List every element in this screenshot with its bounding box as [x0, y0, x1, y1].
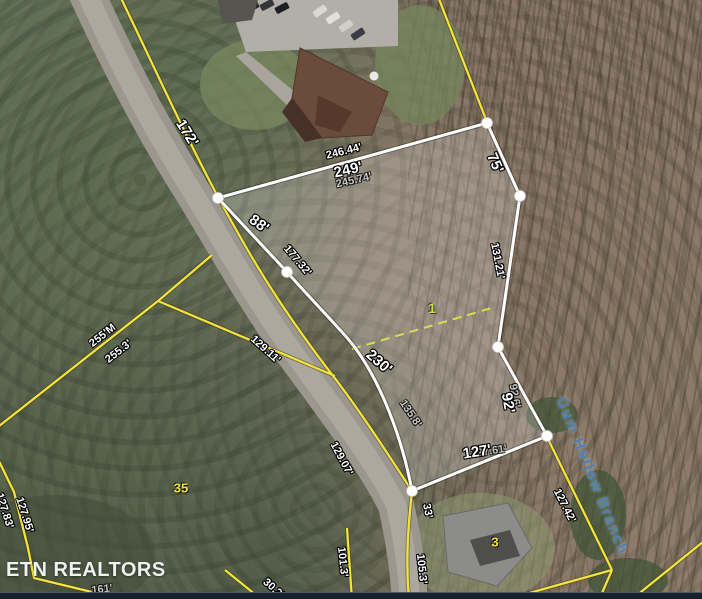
dimension-label: 230': [363, 347, 394, 377]
dimension-label: 105.3': [414, 553, 428, 584]
dimension-label: 172': [173, 117, 201, 149]
dimension-label: 177.32': [281, 244, 313, 279]
dimension-label: 131.21': [488, 242, 506, 280]
dimension-label: 129.07': [328, 440, 355, 477]
dimension-label: 129.11': [248, 334, 282, 366]
dimension-label: 33': [420, 503, 434, 520]
dimension-label: 127': [462, 442, 493, 461]
dimension-label: 127.42': [551, 487, 577, 524]
bottom-bar: [0, 592, 702, 599]
dimension-label: 255.3': [104, 338, 135, 365]
dimension-label: 135.8': [397, 398, 423, 429]
dimension-label: 35: [174, 482, 188, 495]
dimension-label: 127.83': [0, 492, 15, 530]
dimension-label: 127.95': [13, 496, 35, 534]
dimension-label: 92': [499, 392, 517, 415]
dimension-label: 1: [428, 301, 436, 315]
dimension-label: 88': [246, 212, 271, 236]
dimension-label: 255'M: [88, 322, 119, 349]
dimension-label: 3: [491, 536, 498, 549]
listing-aerial-map: 172'246.44'249'245.74'75'88'177.32'131.2…: [0, 0, 702, 599]
dimension-label: 75': [484, 151, 506, 176]
realtor-watermark: ETN REALTORS: [6, 559, 166, 582]
dimension-label: 101.3': [335, 546, 349, 577]
